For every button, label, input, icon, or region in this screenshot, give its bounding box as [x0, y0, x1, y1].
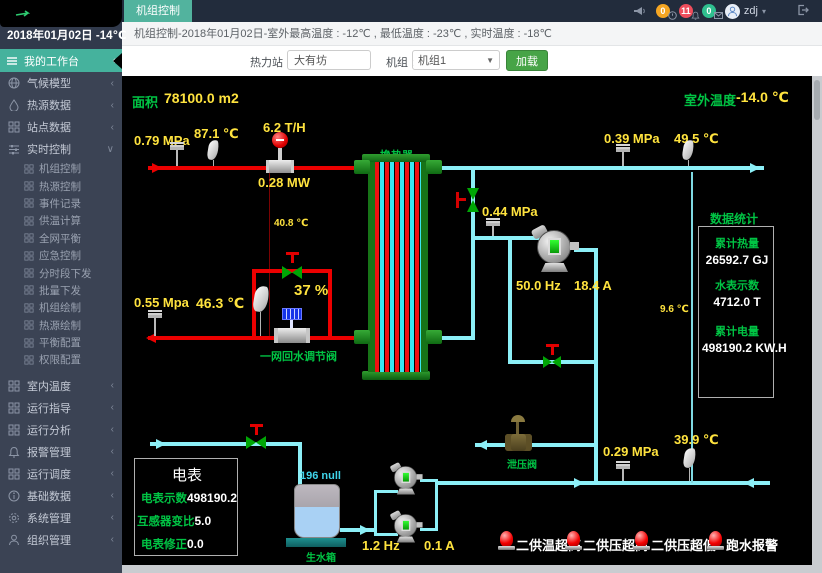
- alarm-lamp: [565, 531, 582, 550]
- menu-label: 运行指导: [27, 400, 71, 416]
- power-value: 0.28 MW: [258, 175, 310, 190]
- bypass-valve-opening: 37 %: [294, 282, 328, 299]
- pump-bypass-left: [508, 236, 512, 364]
- outdoor-temp-value: -14.0 ℃: [736, 89, 789, 106]
- heat-exchanger-port: [426, 160, 442, 174]
- control-valve-actuator: [282, 308, 302, 320]
- sidebar-sub-heat-source-drawing[interactable]: 热源绘制: [0, 317, 122, 334]
- sidebar-item-basic-data[interactable]: 基础数据‹: [0, 485, 122, 507]
- bypass-valve-icon: [282, 266, 302, 279]
- meter-title: 电表: [135, 464, 239, 485]
- primary-return-pressure: 0.55 Mpa: [134, 295, 189, 310]
- scrollbar[interactable]: [814, 80, 820, 120]
- topbar-actions: 0 11 0 zdj ▾: [633, 0, 766, 22]
- pressure-gauge-icon: [616, 144, 630, 166]
- pump-current: 18.4 A: [574, 278, 612, 293]
- grid-icon: [8, 468, 20, 480]
- menu-label: 室内温度: [27, 378, 71, 394]
- stats-heat-label: 累计热量: [699, 235, 775, 251]
- meter-ratio-value: 5.0: [195, 514, 212, 528]
- pressure-gauge-icon: [148, 310, 162, 336]
- username: zdj: [744, 5, 758, 17]
- tank-outlet-pipe: [340, 528, 376, 532]
- sliders-icon: [8, 143, 20, 155]
- grid-icon: [8, 121, 20, 133]
- app-root: 机组控制 0 11 0 zdj ▾ 2018年01月02日 -14℃ 我的工作台: [0, 0, 822, 573]
- menu-icon: [6, 55, 18, 67]
- grid-icon: [8, 424, 20, 436]
- drop-icon: [8, 99, 20, 111]
- menu-label: 站点数据: [27, 119, 71, 135]
- heat-exchanger-port: [426, 330, 442, 344]
- gear-icon: [8, 512, 20, 524]
- chevron-down-icon: ∨: [107, 144, 114, 155]
- makeup-pump-header-left: [374, 490, 377, 536]
- makeup-pump-current: 0.1 A: [424, 538, 455, 553]
- select-caret-icon: ▼: [486, 56, 494, 65]
- pressure-gauge-icon: [616, 461, 630, 481]
- bell-icon: [8, 446, 20, 458]
- relief-valve-stem: [516, 422, 519, 434]
- stats-box: 累计热量 26592.7 GJ 水表示数 4712.0 T 累计电量 49819…: [698, 226, 774, 398]
- flow-arrow: [574, 478, 584, 488]
- shutoff-valve-icon: [467, 188, 479, 212]
- control-valve-body: [274, 328, 310, 343]
- pump-frequency: 50.0 Hz: [516, 278, 561, 293]
- clock-icon: [668, 11, 677, 20]
- makeup-pump2-outlet: [420, 528, 438, 531]
- sidebar-sub-permission-config[interactable]: 权限配置: [0, 351, 122, 368]
- primary-return-temp: 46.3 ℃: [196, 295, 244, 312]
- heat-exchanger-port: [354, 330, 370, 344]
- time-badge[interactable]: 0: [656, 4, 670, 18]
- submenu-label: 供温计算: [39, 213, 81, 228]
- alarm-lamp: [633, 531, 650, 550]
- load-button[interactable]: 加载: [506, 50, 548, 71]
- info-icon: [8, 490, 20, 502]
- stats-title: 数据统计: [710, 210, 758, 227]
- globe-icon: [8, 77, 20, 89]
- sidebar-item-heat-source-data[interactable]: 热源数据‹: [0, 94, 122, 116]
- submenu-label: 批量下发: [39, 283, 81, 298]
- sidebar-sub-unit-drawing[interactable]: 机组绘制: [0, 299, 122, 316]
- bypass-shutoff-valve-icon: [543, 356, 561, 368]
- submenu-label: 权限配置: [39, 352, 81, 367]
- tank-level-value: 196 null: [300, 470, 341, 482]
- unit-select[interactable]: 机组1 ▼: [412, 50, 500, 70]
- stats-elec-value: 498190.2 KW.H: [702, 341, 787, 355]
- flow-meter-stem: [278, 148, 282, 160]
- sidebar-sub-balance-config[interactable]: 平衡配置: [0, 334, 122, 351]
- flow-arrow: [360, 525, 370, 535]
- stats-heat-value: 26592.7 GJ: [699, 253, 775, 267]
- submenu-label: 分时段下发: [39, 266, 92, 281]
- valve-handle: [546, 344, 559, 355]
- tab-unit-control[interactable]: 机组控制: [124, 0, 192, 22]
- tank-label: 生水箱: [306, 549, 336, 564]
- alarm-label-water-loss: 跑水报警: [726, 535, 778, 554]
- submenu-label: 平衡配置: [39, 335, 81, 350]
- chevron-left-icon: ‹: [111, 100, 114, 111]
- tank-water-level: [295, 507, 339, 537]
- alarm-lamp: [707, 531, 724, 550]
- sidebar-item-operation-dispatch[interactable]: 运行调度‹: [0, 463, 122, 485]
- area-label: 面积: [132, 92, 158, 111]
- sidebar: 2018年01月02日 -14℃ 我的工作台 ‹ 气候模型‹ 热源数据‹ 站点数…: [0, 22, 122, 573]
- electric-meter-box: 电表 电表示数498190.2 互感器变比5.0 电表修正0.0: [134, 458, 238, 556]
- menu-label: 气候模型: [27, 75, 71, 91]
- sidebar-sub-unit-control[interactable]: 机组控制: [0, 160, 122, 177]
- menu-label: 基础数据: [27, 488, 71, 504]
- chevron-down-icon: ▾: [762, 7, 766, 16]
- sidebar-sub-emergency-control[interactable]: 应急控制: [0, 247, 122, 264]
- makeup-valve-icon: [246, 436, 266, 449]
- mid-temp-value: 40.8 ℃: [274, 218, 308, 229]
- makeup-pump-header-right: [435, 479, 438, 531]
- makeup-pump1-outlet: [420, 479, 438, 482]
- filter-bar: 热力站 : 机组 : 机组1 ▼ 加载: [122, 46, 822, 76]
- unit-select-value: 机组1: [418, 52, 446, 68]
- relief-valve-label: 泄压阀: [507, 456, 537, 471]
- makeup-pump1-inlet: [374, 490, 398, 493]
- sidebar-item-workbench[interactable]: 我的工作台 ‹: [0, 49, 122, 72]
- message-badge[interactable]: 0: [702, 4, 716, 18]
- valve-handle: [456, 192, 459, 208]
- sensor-line: [269, 170, 270, 336]
- pressure-gauge-icon: [170, 142, 184, 166]
- meter-correction-value: 0.0: [187, 537, 204, 551]
- secondary-return-pipe: [436, 481, 770, 485]
- tank-base: [286, 538, 346, 547]
- sidebar-item-realtime-control[interactable]: 实时控制∨: [0, 138, 122, 160]
- stats-elec-label: 累计电量: [699, 323, 775, 339]
- secondary-return-pressure: 0.29 MPa: [603, 444, 659, 459]
- hx-bottom-pipe: [440, 336, 475, 340]
- mail-icon: [714, 11, 723, 20]
- water-tank: [294, 484, 340, 538]
- sidebar-sub-heat-source-control[interactable]: 热源控制: [0, 177, 122, 194]
- logo-scribble: [14, 9, 40, 19]
- heat-exchanger-bottom-cap: [362, 371, 430, 380]
- alarm-lamp: [498, 531, 515, 550]
- menu-label: 报警管理: [27, 444, 71, 460]
- makeup-water-pipe: [150, 442, 302, 446]
- sidebar-item-operation-guide[interactable]: 运行指导‹: [0, 397, 122, 419]
- workbench-label: 我的工作台: [24, 53, 79, 69]
- sidebar-item-system-management[interactable]: 系统管理‹: [0, 507, 122, 529]
- flow-arrow: [477, 440, 487, 450]
- meter-correction-label: 电表修正: [141, 539, 187, 551]
- sidebar-sub-timed-dispatch[interactable]: 分时段下发: [0, 264, 122, 281]
- menu-label: 系统管理: [27, 510, 71, 526]
- relief-pipe: [475, 443, 596, 447]
- unit-label: 机组 :: [386, 54, 414, 70]
- page-info-bar: 机组控制-2018年01月02日-室外最高温度 : -12℃ , 最低温度 : …: [122, 22, 822, 46]
- sidebar-item-indoor-temp[interactable]: 室内温度‹: [0, 375, 122, 397]
- control-valve-label: 一网回水调节阀: [260, 348, 337, 364]
- sidebar-sub-network-balance[interactable]: 全网平衡: [0, 230, 122, 247]
- logout-icon[interactable]: [797, 4, 810, 17]
- alarm-badge-count: 11: [681, 6, 691, 16]
- bell-icon: [691, 11, 700, 20]
- heat-exchanger-plates: [375, 162, 421, 372]
- meter-reading-value: 498190.2: [187, 491, 237, 505]
- message-badge-count: 0: [706, 6, 711, 16]
- bypass-pipe-right: [328, 269, 332, 338]
- alarm-badge[interactable]: 11: [679, 4, 693, 18]
- sidebar-item-climate-model[interactable]: 气候模型‹: [0, 72, 122, 94]
- announcement-icon[interactable]: [633, 5, 647, 18]
- flow-meter-icon: [272, 132, 288, 148]
- secondary-supply-pipe: [440, 166, 764, 170]
- collapse-notch[interactable]: [113, 53, 122, 69]
- sidebar-sub-supply-temp-calc[interactable]: 供温计算: [0, 212, 122, 229]
- secondary-return-temp: 39.9 ℃: [674, 432, 719, 448]
- sidebar-sub-batch-dispatch[interactable]: 批量下发: [0, 282, 122, 299]
- meter-ratio-label: 互感器变比: [137, 516, 195, 528]
- chevron-left-icon: ‹: [111, 78, 114, 89]
- menu-label: 组织管理: [27, 532, 71, 548]
- chevron-left-icon: ‹: [111, 122, 114, 133]
- grid-icon: [8, 402, 20, 414]
- valve-handle: [286, 252, 299, 263]
- user-menu[interactable]: zdj ▾: [725, 4, 766, 19]
- submenu-label: 应急控制: [39, 248, 81, 263]
- submenu-label: 机组绘制: [39, 300, 81, 315]
- time-badge-count: 0: [660, 6, 665, 16]
- scada-canvas: 面积 78100.0 m2 室外温度 -14.0 ℃: [122, 76, 812, 565]
- area-value: 78100.0 m2: [164, 90, 239, 106]
- stats-water-label: 水表示数: [699, 277, 775, 293]
- relief-valve-body: [505, 434, 532, 451]
- relief-valve-cap: [511, 415, 525, 422]
- secondary-pressure: 0.44 MPa: [482, 204, 538, 219]
- person-icon: [8, 534, 20, 546]
- flow-arrow: [744, 478, 754, 488]
- menu-label: 热源数据: [27, 97, 71, 113]
- menu-label: 实时控制: [27, 141, 71, 157]
- submenu-label: 全网平衡: [39, 231, 81, 246]
- station-input[interactable]: [287, 50, 371, 70]
- secondary-supply-temp: 49.5 ℃: [674, 131, 719, 147]
- sidebar-item-operation-analysis[interactable]: 运行分析‹: [0, 419, 122, 441]
- station-label: 热力站 :: [250, 54, 289, 70]
- riser-temp: 9.6 ℃: [660, 304, 689, 315]
- primary-supply-pipe: [148, 166, 360, 170]
- menu-label: 运行调度: [27, 466, 71, 482]
- meter-reading-label: 电表示数: [141, 493, 187, 505]
- flow-meter-body: [266, 160, 294, 173]
- flow-arrow: [152, 163, 162, 173]
- avatar: [725, 4, 740, 19]
- grid-icon: [8, 380, 20, 392]
- valve-handle: [250, 424, 263, 435]
- top-bar: 机组控制 0 11 0 zdj ▾: [0, 0, 822, 22]
- sidebar-item-org-management[interactable]: 组织管理‹: [0, 529, 122, 551]
- sidebar-item-station-data[interactable]: 站点数据‹: [0, 116, 122, 138]
- secondary-supply-pressure: 0.39 MPa: [604, 131, 660, 146]
- stats-water-value: 4712.0 T: [699, 295, 775, 309]
- logo: [0, 0, 122, 27]
- flow-arrow: [156, 439, 166, 449]
- sidebar-item-alarm-management[interactable]: 报警管理‹: [0, 441, 122, 463]
- pressure-gauge-icon: [486, 218, 500, 236]
- sidebar-sub-event-log[interactable]: 事件记录: [0, 195, 122, 212]
- submenu-label: 事件记录: [39, 196, 81, 211]
- submenu-label: 机组控制: [39, 161, 81, 176]
- submenu-label: 热源控制: [39, 179, 81, 194]
- heat-exchanger-port: [354, 160, 370, 174]
- makeup-pump-frequency: 1.2 Hz: [362, 538, 400, 553]
- menu-label: 运行分析: [27, 422, 71, 438]
- makeup-pump2-inlet: [374, 533, 398, 536]
- outdoor-temp-label: 室外温度: [684, 90, 736, 109]
- flow-arrow: [750, 163, 760, 173]
- submenu-label: 热源绘制: [39, 318, 81, 333]
